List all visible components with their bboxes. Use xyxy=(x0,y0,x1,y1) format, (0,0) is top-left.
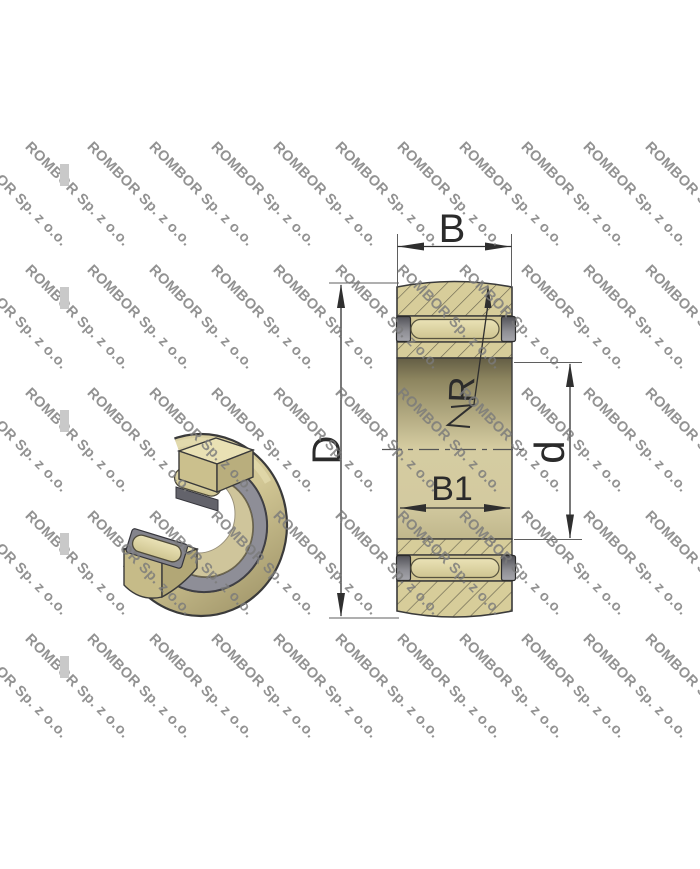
arrowhead xyxy=(566,363,574,387)
roller-end-washer-top-right xyxy=(502,317,516,342)
product-image-canvas: B B1 D xyxy=(0,0,700,869)
dim-label-B: B xyxy=(439,207,466,251)
dimension-D: D xyxy=(305,283,399,618)
outer-ring-top-section xyxy=(397,282,512,317)
dim-label-D: D xyxy=(305,436,349,465)
dim-label-d: d xyxy=(526,440,573,463)
arrowhead xyxy=(337,284,345,308)
arrowhead xyxy=(398,243,424,251)
bearing-technical-drawing: B B1 D xyxy=(0,0,700,869)
bearing-3d-view xyxy=(42,388,287,616)
inner-ring-top-section xyxy=(397,342,512,358)
outer-ring-bottom-section xyxy=(397,581,512,617)
dim-label-B1: B1 xyxy=(431,470,473,508)
roller-end-washer-top-left xyxy=(397,317,411,342)
dimension-B: B xyxy=(398,207,512,286)
roller-end-washer-bottom-left xyxy=(397,556,411,581)
arrowhead xyxy=(485,243,511,251)
arrowhead xyxy=(566,515,574,539)
inner-ring-bottom-section xyxy=(397,539,512,555)
needle-roller-bottom xyxy=(411,559,499,578)
arrowhead xyxy=(337,593,345,617)
dimension-d: d xyxy=(514,363,582,540)
dim-label-R: R xyxy=(441,376,483,403)
roller-end-washer-bottom-right xyxy=(502,556,516,581)
bearing-cross-section xyxy=(382,282,529,618)
